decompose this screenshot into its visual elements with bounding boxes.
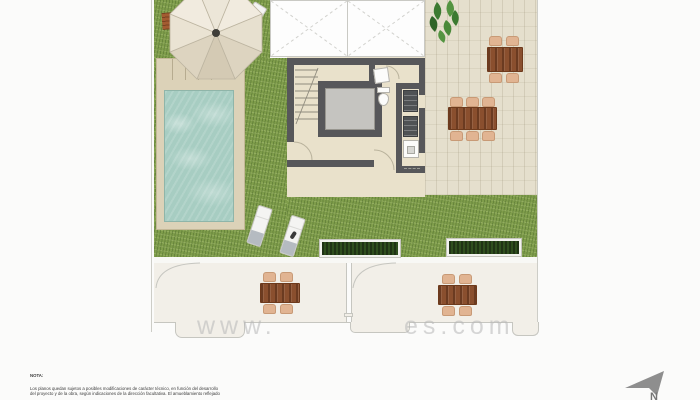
pool-step-line: [185, 59, 186, 80]
dining-table-1: [487, 47, 523, 72]
watermark-suffix: es.com: [404, 312, 515, 341]
lounger-line: [256, 215, 269, 220]
sink: [373, 67, 390, 84]
skylight-panel-right: [347, 0, 425, 57]
wall-core-top: [287, 58, 425, 65]
chair: [466, 131, 479, 141]
chair: [506, 73, 519, 83]
plan-edge-right: [537, 0, 538, 322]
pool-step-line: [172, 59, 173, 80]
chair: [263, 272, 276, 282]
chair: [442, 274, 455, 284]
chair: [450, 131, 463, 141]
wall-utility-left: [396, 83, 402, 160]
chair: [459, 274, 472, 284]
chair: [450, 97, 463, 107]
north-label: N: [650, 391, 658, 400]
wall-core-left: [287, 58, 294, 142]
chair: [489, 73, 502, 83]
dining-table-2: [448, 107, 497, 130]
skylight-panel-left: [270, 0, 348, 57]
dining-table-3: [260, 283, 300, 303]
hvac-unit-2: [403, 116, 418, 137]
plan-edge-left: [151, 0, 152, 332]
hvac-unit-1: [403, 90, 418, 112]
facade-notch-2: [350, 322, 410, 333]
lounger-foot: [247, 230, 263, 246]
wall-bottom-right-vert: [396, 150, 402, 167]
bench: [161, 11, 190, 30]
facade-notch-3: [512, 322, 539, 336]
chair: [489, 36, 502, 46]
lounger-line: [249, 11, 261, 19]
chair: [506, 36, 519, 46]
lounger-line: [289, 225, 302, 230]
door-opening-dashed: [404, 168, 420, 169]
wall-core-right-upper: [419, 58, 425, 95]
elevator-cab: [325, 88, 375, 130]
chair: [280, 304, 293, 314]
note-heading: NOTA:: [30, 373, 43, 378]
chair: [482, 97, 495, 107]
watermark-prefix: www.: [197, 312, 277, 341]
lounger-foot: [280, 240, 296, 256]
pool-step-line: [198, 59, 199, 80]
roof-terrace-deck: [425, 0, 537, 195]
chair: [466, 97, 479, 107]
towel: [289, 231, 297, 240]
washer-drum: [407, 146, 415, 154]
note-line-2: del proyecto y de la obra, según indicac…: [30, 391, 230, 396]
pool-water: [164, 90, 234, 222]
wall-core-bottom: [287, 160, 374, 167]
dining-table-4: [438, 285, 477, 305]
pool-step-line: [211, 59, 212, 80]
balcony-divider-connector: [344, 313, 353, 317]
chair: [280, 272, 293, 282]
north-arrow-icon: N: [625, 371, 664, 400]
planter-2: [447, 239, 521, 256]
planter-1: [320, 240, 400, 257]
floor-plan-page: { "plan": { "kind": "roof-terrace floor …: [0, 0, 700, 400]
wall-core-right-lower: [419, 108, 425, 153]
chair: [482, 131, 495, 141]
